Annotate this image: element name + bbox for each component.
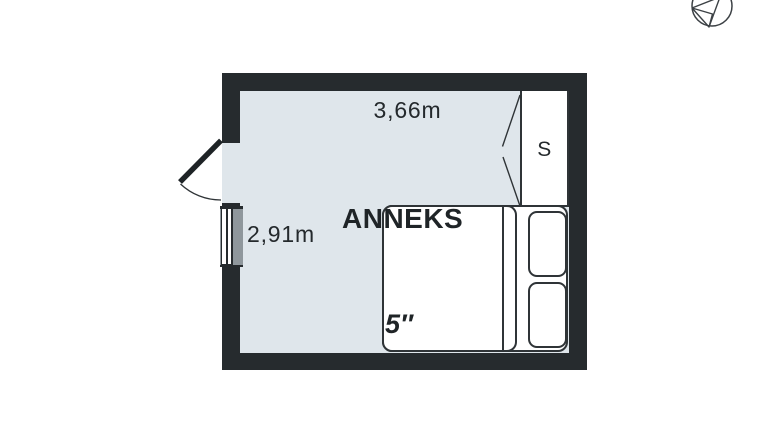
window-icon xyxy=(220,206,243,267)
bed-size-label: 5″ xyxy=(385,309,413,340)
window-pane-inner xyxy=(228,209,232,264)
window-pane-outer xyxy=(222,209,226,264)
compass-north-icon xyxy=(688,0,736,30)
window-frame-bottom xyxy=(220,265,243,268)
bed-pillow-top xyxy=(528,211,567,277)
bed-duvet-fold-line xyxy=(502,207,504,350)
closet-label: S xyxy=(520,138,569,162)
door-swing-arc xyxy=(181,184,222,200)
bed-pillow-bottom xyxy=(528,282,567,348)
entry-door-leaf xyxy=(180,141,221,183)
window-glazing xyxy=(221,209,233,265)
dimension-width-label: 3,66m xyxy=(345,97,470,124)
door-opening xyxy=(222,143,240,203)
dimension-height-label: 2,91m xyxy=(247,221,315,248)
floorplan-canvas: S 3,66m 2,91m ANNEKS 5″ xyxy=(0,0,768,422)
room-name-label: ANNEKS xyxy=(342,203,463,235)
